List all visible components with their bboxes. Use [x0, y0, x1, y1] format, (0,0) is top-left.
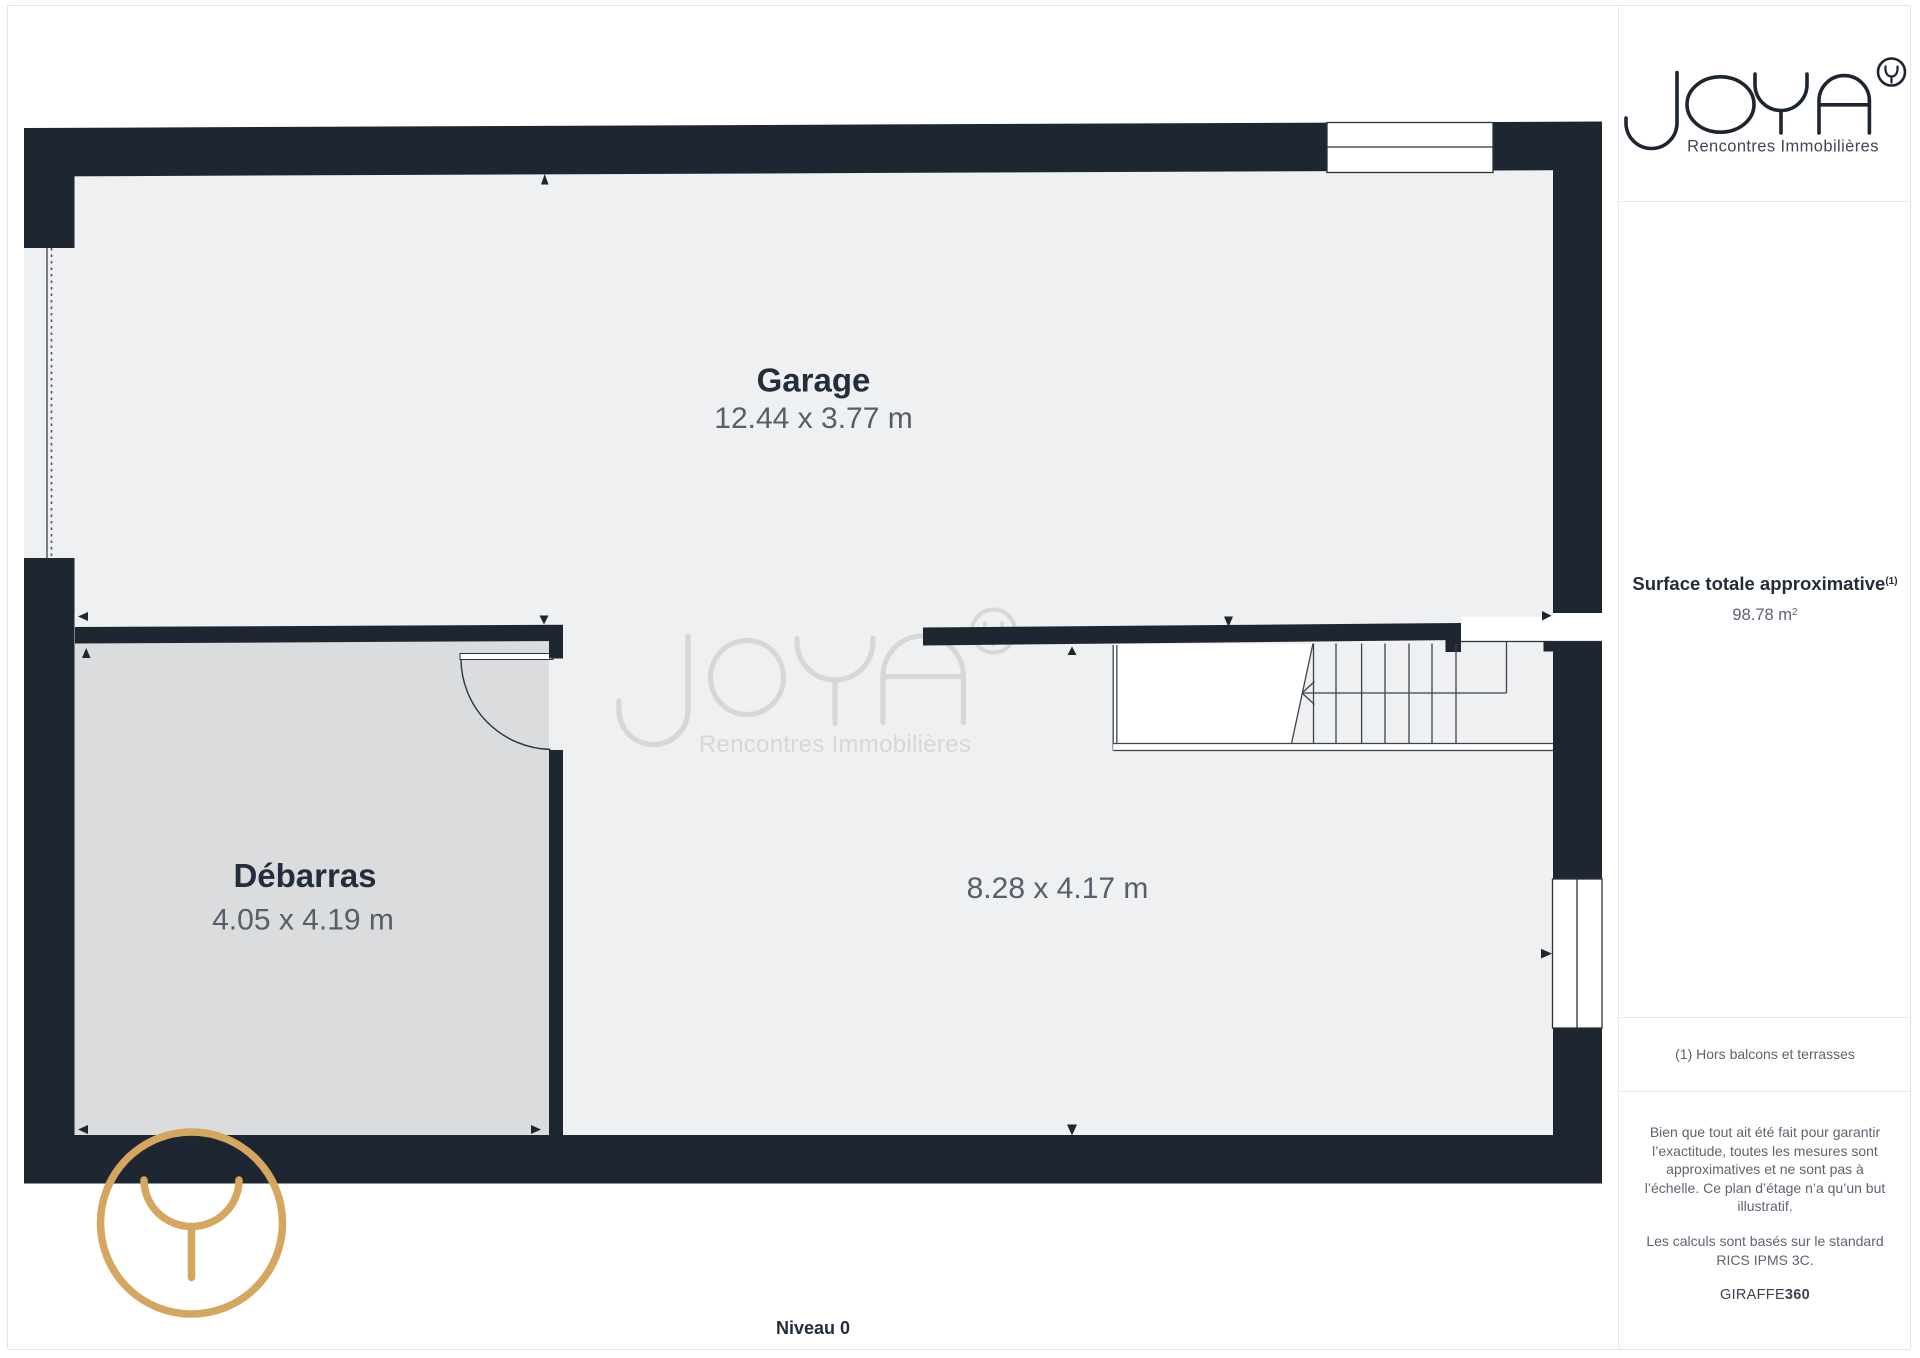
svg-text:4.05 x 4.19 m: 4.05 x 4.19 m [212, 904, 394, 937]
svg-text:Garage: Garage [757, 362, 871, 399]
svg-text:Niveau 0: Niveau 0 [776, 1318, 850, 1338]
svg-text:Débarras: Débarras [233, 857, 376, 894]
svg-text:Rencontres Immobilières: Rencontres Immobilières [699, 731, 971, 758]
svg-text:Rencontres Immobilières: Rencontres Immobilières [1687, 138, 1879, 156]
svg-text:8.28 x 4.17 m: 8.28 x 4.17 m [967, 872, 1149, 905]
svg-text:12.44 x 3.77 m: 12.44 x 3.77 m [714, 402, 912, 435]
